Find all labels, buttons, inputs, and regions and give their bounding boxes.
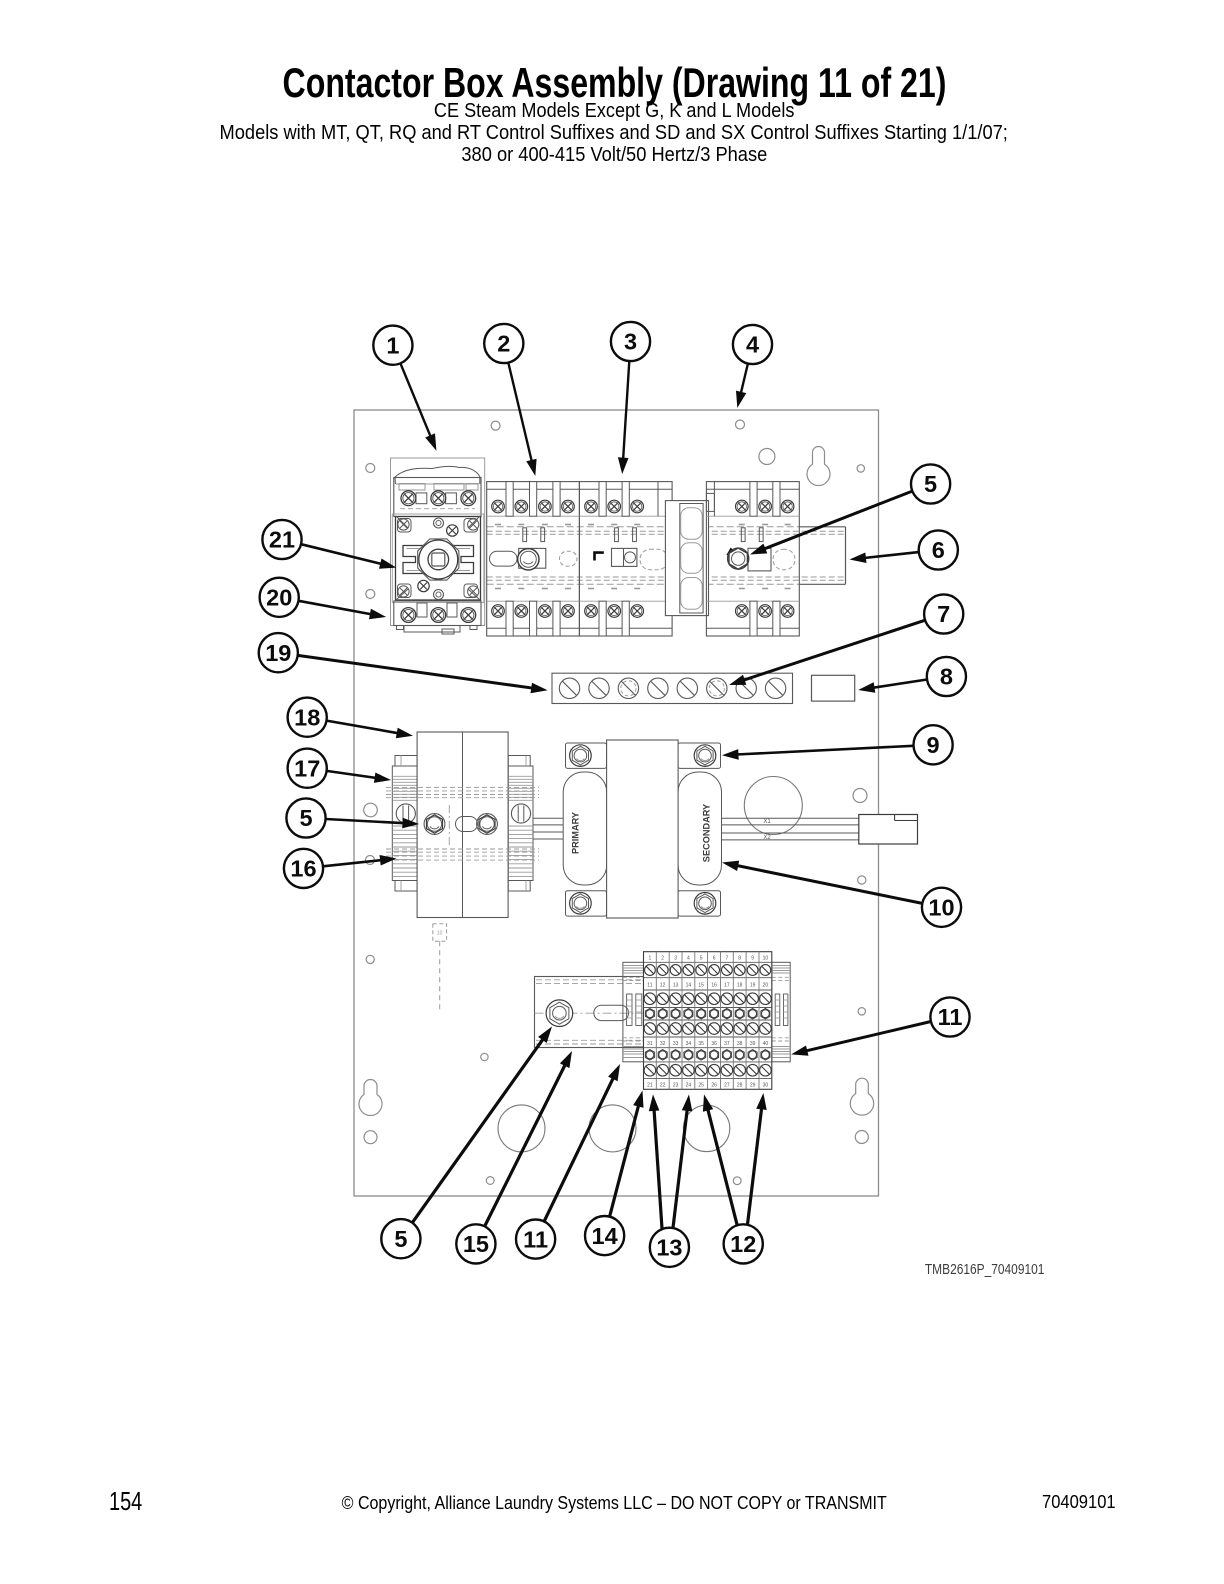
- svg-text:17: 17: [724, 982, 730, 988]
- svg-text:6: 6: [713, 956, 716, 962]
- svg-text:40: 40: [763, 1041, 769, 1047]
- svg-text:13: 13: [673, 982, 679, 988]
- svg-text:26: 26: [711, 1083, 717, 1089]
- svg-text:4: 4: [746, 332, 759, 358]
- svg-text:7: 7: [726, 956, 729, 962]
- svg-text:X1: X1: [763, 819, 771, 825]
- svg-text:X2: X2: [763, 835, 771, 841]
- svg-text:24: 24: [686, 1083, 692, 1089]
- svg-text:3: 3: [674, 956, 677, 962]
- svg-text:2: 2: [661, 956, 664, 962]
- svg-text:19: 19: [265, 640, 291, 666]
- svg-text:34: 34: [686, 1041, 692, 1047]
- svg-text:32: 32: [660, 1041, 666, 1047]
- svg-text:16: 16: [711, 982, 717, 988]
- svg-text:10: 10: [763, 956, 769, 962]
- svg-text:5: 5: [700, 956, 703, 962]
- svg-text:20: 20: [763, 982, 769, 988]
- svg-text:27: 27: [724, 1083, 730, 1089]
- svg-text:SECONDARY: SECONDARY: [702, 804, 712, 862]
- svg-text:37: 37: [724, 1041, 730, 1047]
- svg-text:21: 21: [647, 1083, 653, 1089]
- svg-text:18: 18: [294, 704, 320, 730]
- svg-text:11: 11: [938, 1004, 963, 1030]
- svg-text:11: 11: [647, 982, 652, 988]
- svg-text:35: 35: [698, 1041, 704, 1047]
- svg-text:14: 14: [592, 1223, 618, 1249]
- svg-text:20: 20: [266, 585, 292, 611]
- svg-text:39: 39: [750, 1041, 756, 1047]
- svg-text:25: 25: [698, 1083, 704, 1089]
- svg-text:23: 23: [673, 1083, 679, 1089]
- svg-text:19: 19: [750, 982, 756, 988]
- svg-text:17: 17: [294, 755, 320, 781]
- svg-text:14: 14: [686, 982, 692, 988]
- svg-text:5: 5: [924, 471, 937, 497]
- svg-text:18: 18: [737, 982, 743, 988]
- svg-text:16: 16: [290, 856, 316, 882]
- svg-text:1: 1: [649, 956, 652, 962]
- svg-text:13: 13: [656, 1235, 682, 1261]
- svg-text:TMB2616P_70409101: TMB2616P_70409101: [925, 1262, 1045, 1278]
- svg-text:6: 6: [932, 537, 945, 563]
- svg-text:15: 15: [463, 1231, 489, 1257]
- svg-text:21: 21: [269, 527, 295, 553]
- svg-text:15: 15: [698, 982, 704, 988]
- svg-text:30: 30: [763, 1083, 769, 1089]
- svg-text:9: 9: [927, 732, 940, 758]
- svg-text:3: 3: [624, 329, 637, 355]
- svg-text:8: 8: [738, 956, 741, 962]
- svg-text:29: 29: [750, 1083, 756, 1089]
- svg-text:28: 28: [737, 1083, 743, 1089]
- svg-text:36: 36: [711, 1041, 717, 1047]
- svg-text:1: 1: [386, 332, 399, 358]
- svg-text:10: 10: [437, 931, 443, 937]
- svg-text:2: 2: [497, 331, 510, 357]
- svg-text:4: 4: [687, 956, 690, 962]
- svg-text:8: 8: [940, 664, 953, 690]
- svg-text:33: 33: [673, 1041, 679, 1047]
- svg-text:12: 12: [660, 982, 666, 988]
- svg-text:31: 31: [647, 1041, 653, 1047]
- svg-text:11: 11: [523, 1226, 548, 1252]
- svg-text:22: 22: [660, 1083, 666, 1089]
- svg-text:12: 12: [730, 1231, 756, 1257]
- svg-text:PRIMARY: PRIMARY: [571, 812, 581, 854]
- svg-text:5: 5: [299, 805, 312, 831]
- svg-text:38: 38: [737, 1041, 743, 1047]
- svg-text:10: 10: [928, 895, 954, 921]
- svg-text:7: 7: [937, 601, 950, 627]
- svg-text:5: 5: [394, 1226, 407, 1252]
- svg-text:9: 9: [751, 956, 754, 962]
